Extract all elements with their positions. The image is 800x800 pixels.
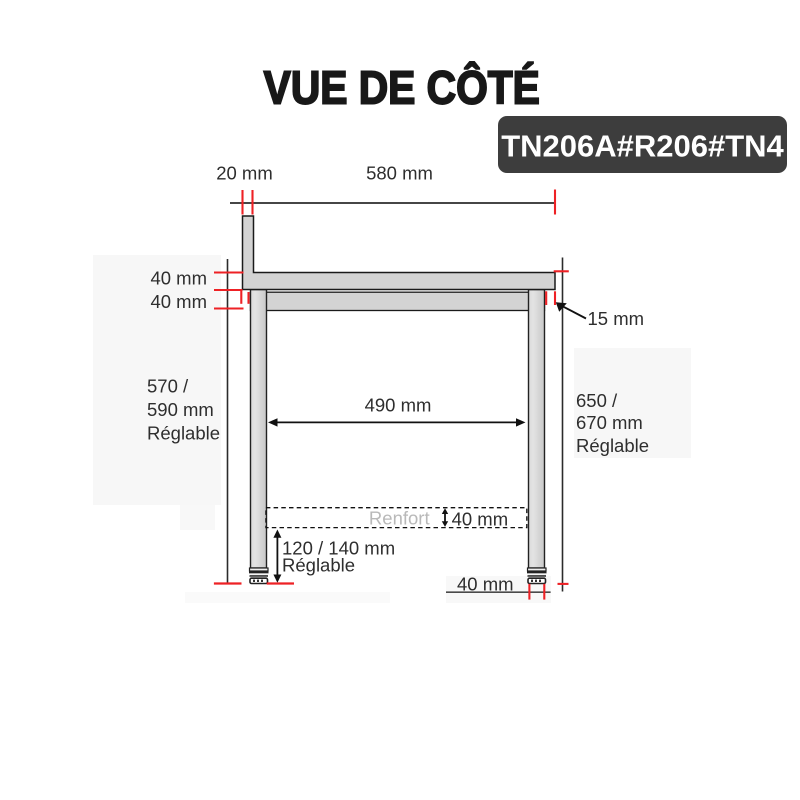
svg-text:Réglable: Réglable	[576, 435, 649, 456]
svg-text:Réglable: Réglable	[282, 555, 355, 576]
svg-text:580 mm: 580 mm	[366, 163, 433, 184]
svg-text:590 mm: 590 mm	[147, 399, 214, 420]
svg-text:650 /: 650 /	[576, 390, 618, 411]
svg-text:40 mm: 40 mm	[457, 574, 514, 595]
svg-text:Renfort: Renfort	[369, 508, 430, 529]
svg-text:VUE DE CÔTÉ: VUE DE CÔTÉ	[264, 60, 540, 114]
svg-text:TN206A#R206#TN4: TN206A#R206#TN4	[501, 129, 784, 164]
svg-text:490 mm: 490 mm	[365, 395, 432, 416]
svg-text:20 mm: 20 mm	[216, 163, 273, 184]
svg-text:40 mm: 40 mm	[452, 508, 509, 529]
svg-text:15 mm: 15 mm	[588, 308, 645, 329]
svg-text:Réglable: Réglable	[147, 422, 220, 443]
svg-text:570 /: 570 /	[147, 376, 189, 397]
svg-text:40 mm: 40 mm	[150, 291, 207, 312]
svg-text:670 mm: 670 mm	[576, 412, 643, 433]
svg-text:40 mm: 40 mm	[150, 268, 207, 289]
